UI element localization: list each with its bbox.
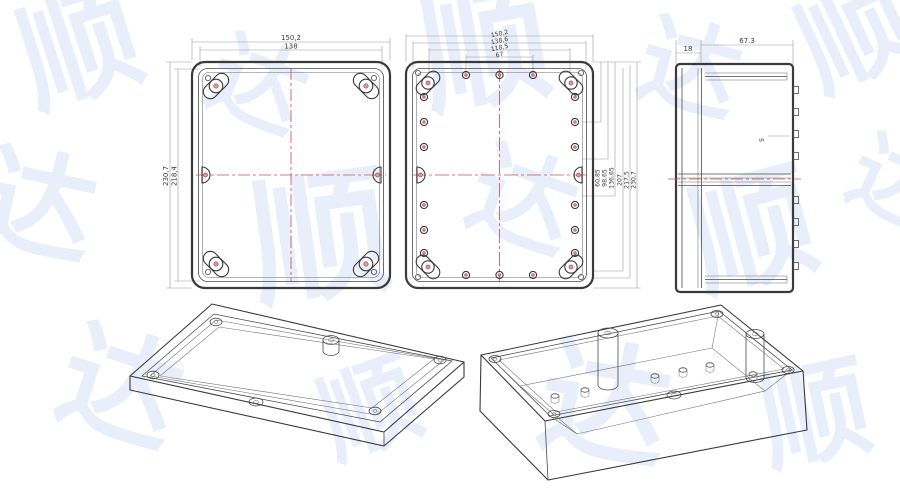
screw-hole (420, 201, 427, 208)
side-body-outline (676, 64, 793, 292)
corner-ear (350, 248, 381, 279)
lid-top-view: 150,2 138 230,7 218,4 (160, 28, 400, 300)
watermark-glyph: 达 (835, 125, 900, 245)
side-tab-label: 5 (759, 136, 790, 142)
dim-tab-size: 5 (759, 138, 766, 142)
screw-hole (571, 143, 578, 150)
corner-ear (200, 70, 231, 101)
dim-lid-thickness: 18 (684, 45, 693, 53)
corner-boss (147, 371, 159, 379)
floor-boss (706, 363, 714, 372)
lid-dimension-lines: 150,2 138 230,7 218,4 (162, 34, 390, 288)
mid-boss (249, 398, 263, 406)
dim-base-right: 98,65 (602, 169, 609, 187)
screw-hole (571, 118, 578, 125)
wall-pillar (598, 328, 618, 390)
screw-hole (571, 201, 578, 208)
lid-centerlines (196, 68, 386, 282)
dim-base-right: 217,5 (624, 171, 631, 189)
corner-boss (369, 407, 381, 415)
dim-base-right: 136,65 (609, 167, 616, 189)
dim-lid-width-inner: 138 (284, 43, 297, 51)
side-dimension-lines: 18 67.3 (676, 37, 793, 64)
watermark-glyph: 达 (0, 139, 106, 275)
lid-isometric-view (126, 298, 476, 478)
base-dimension-lines-right: 60,85 98,65 136,65 207 217,5 230,7 (582, 62, 641, 288)
floor-boss (651, 374, 659, 383)
corner-boss (210, 318, 222, 326)
dim-lid-height-inner: 218,4 (171, 165, 179, 186)
iso-base-floor-bosses (551, 363, 757, 403)
corner-ear (414, 253, 443, 282)
floor-boss (551, 394, 559, 403)
corner-ear (350, 70, 381, 101)
corner-ear (200, 248, 231, 279)
floor-boss (679, 368, 687, 377)
corner-ear (557, 253, 586, 282)
technical-drawing-canvas: 顺 达 顺 达 顺 达 顺 达 顺 达 顺 达 顺 达 150,2 138 (0, 0, 900, 500)
corner-boss (548, 411, 560, 418)
dim-base-right: 230,7 (631, 171, 638, 189)
side-view: 18 67.3 (648, 28, 808, 300)
dim-base-right: 207 (617, 174, 624, 186)
dim-base-right: 60,85 (595, 169, 602, 187)
watermark-glyph: 顺 (4, 0, 155, 126)
screw-hole (420, 226, 427, 233)
dim-lid-height-outer: 230,7 (162, 166, 170, 186)
floor-boss (581, 388, 589, 397)
dim-base-top: 67 (495, 51, 504, 59)
iso-lid-outline (130, 304, 464, 446)
corner-ear (557, 69, 586, 98)
screw-hole (420, 143, 427, 150)
dim-lid-width-outer: 150,2 (281, 34, 301, 42)
dim-base-depth: 67.3 (739, 37, 755, 45)
base-top-view: 150,2 138,6 118,5 67 60,85 98,65 136,65 … (398, 28, 658, 300)
base-isometric-view (460, 288, 865, 500)
screw-hole (420, 118, 427, 125)
base-dimension-lines-top: 150,2 138,6 118,5 67 (406, 29, 593, 72)
screw-hole (571, 226, 578, 233)
base-centerlines (412, 68, 587, 282)
iso-base-wall-pillars (598, 328, 764, 390)
iso-base-outline (480, 305, 807, 480)
corner-ear (414, 69, 443, 98)
